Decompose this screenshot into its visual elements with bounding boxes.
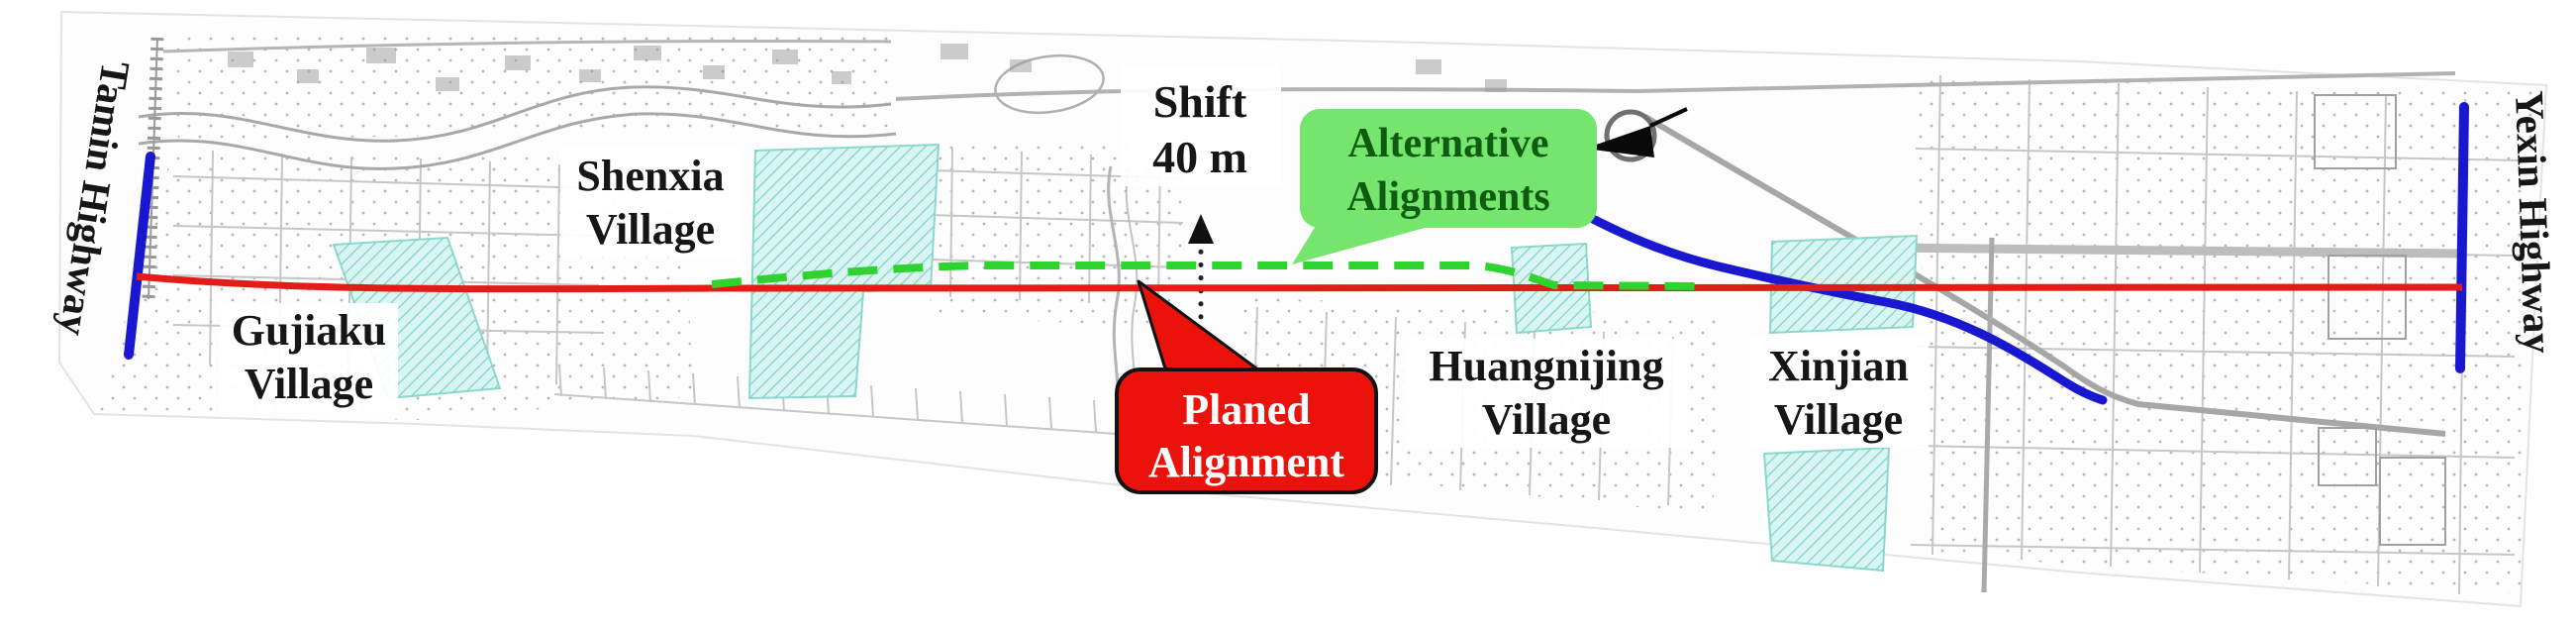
xinjian-village-label: Xinjian [1768, 342, 1909, 390]
yexin-highway-label: Yexin Highway [2507, 90, 2561, 355]
huangnijing-village-label-line2: Village [1482, 395, 1611, 444]
huangnijing-village-label: Huangnijing [1429, 342, 1663, 390]
gujiaku-village-label: Gujiaku [232, 306, 387, 355]
gujiaku-village-label-line2: Village [245, 360, 373, 408]
shift-annotation-line2: 40 m [1152, 132, 1247, 182]
alternative-callout-text: Alternative [1348, 121, 1549, 166]
map-canvas: Shenxia Village Gujiaku Village Huangnij… [0, 0, 2576, 628]
planned-callout-text: Planed [1182, 385, 1311, 434]
village-area-xinjian-south [1764, 448, 1889, 571]
alternative-callout-text-line2: Alignments [1346, 174, 1549, 220]
alignment-map-figure: Shenxia Village Gujiaku Village Huangnij… [0, 0, 2576, 628]
yexin-highway-line [2460, 107, 2464, 368]
shift-annotation: Shift [1153, 76, 1247, 127]
planned-callout-text-line2: Alignment [1148, 438, 1344, 486]
xinjian-village-label-line2: Village [1774, 395, 1903, 444]
shenxia-village-label: Shenxia [576, 152, 724, 200]
shenxia-village-label-line2: Village [586, 205, 715, 254]
